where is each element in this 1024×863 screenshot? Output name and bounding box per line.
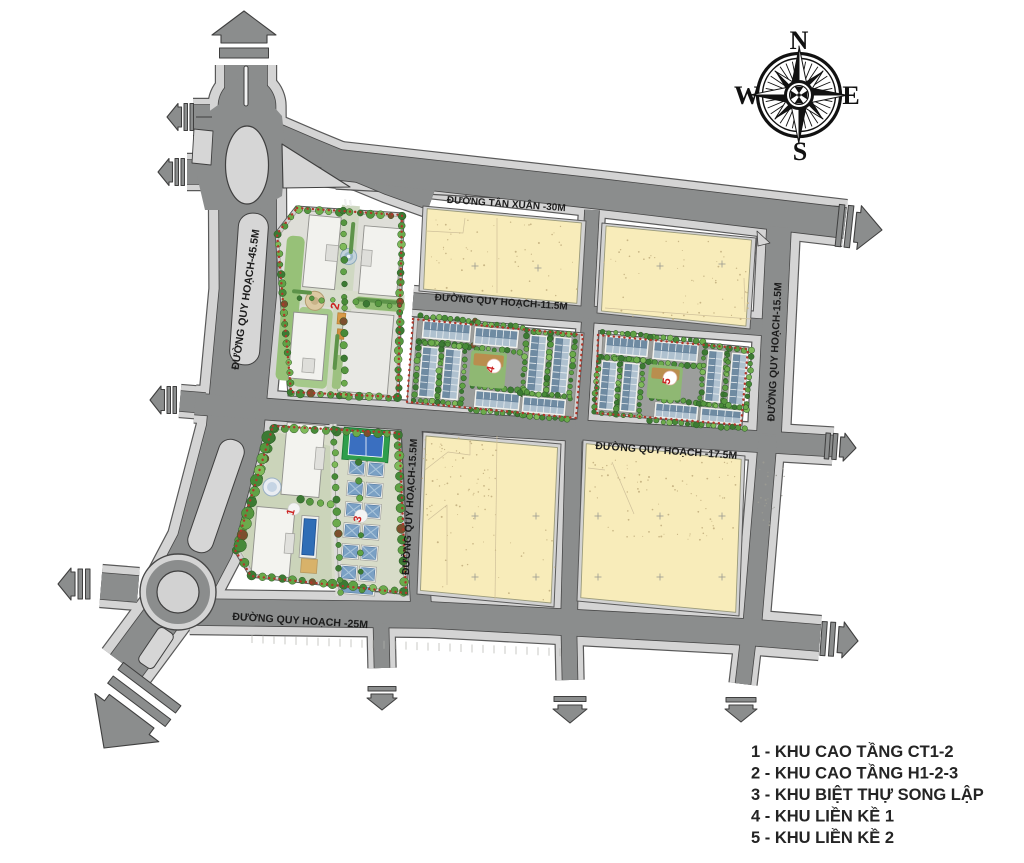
svg-text:E: E [842,81,859,110]
svg-text:4 - KHU LIỀN KỀ 1: 4 - KHU LIỀN KỀ 1 [751,807,894,826]
svg-text:1 - KHU CAO TẦNG CT1-2: 1 - KHU CAO TẦNG CT1-2 [751,742,954,761]
svg-text:5 - KHU LIỀN KỀ 2: 5 - KHU LIỀN KỀ 2 [751,828,894,847]
svg-text:3 - KHU BIỆT THỰ SONG LẬP: 3 - KHU BIỆT THỰ SONG LẬP [751,785,984,804]
svg-text:N: N [790,26,809,55]
svg-text:2 - KHU CAO TẦNG H1-2-3: 2 - KHU CAO TẦNG H1-2-3 [751,764,958,783]
svg-text:S: S [793,137,807,166]
svg-text:W: W [734,81,760,110]
